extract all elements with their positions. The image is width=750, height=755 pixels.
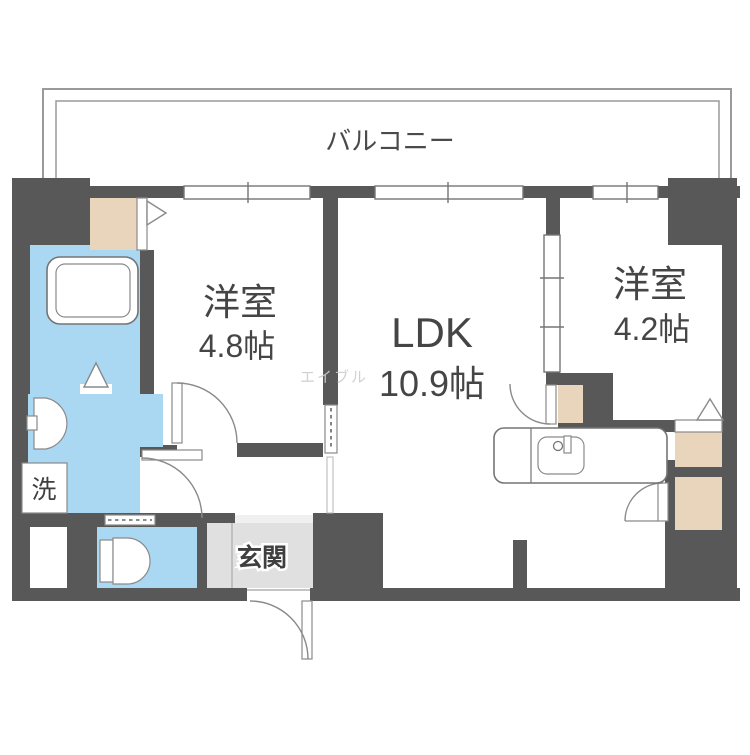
wall-right [722,245,737,601]
east-closet-swing-triangle [697,399,723,420]
bathtub-inner-icon [56,264,130,317]
west-room-closet-door [137,198,147,250]
west-room-size: 4.8帖 [199,328,276,364]
wall-toilet-left [67,527,97,590]
window-east-room [593,186,658,199]
wall-east-partition-top [546,198,560,235]
east-room-closet [675,432,722,467]
wall-corner-top-right [668,178,737,245]
wall-bottom-left [12,588,247,601]
west-room-door-arc [177,383,237,443]
wall-top-3 [523,186,593,198]
entrance-door-arc [250,601,308,659]
east-room-name: 洋室 [613,264,687,305]
balcony: バルコニー [43,89,731,190]
floorplan-drawing: バルコニー [0,0,750,750]
wall-storage-bottom-block [675,530,722,601]
kitchen-faucet-bar-icon [564,436,571,453]
wall-storage-divider [675,467,722,477]
window-west-room [184,186,310,199]
kitchen-faucet-icon [554,442,563,451]
wall-entrance-right-block [313,513,383,590]
storage-closet [675,477,722,530]
wall-ldk-stub [513,540,527,588]
floorplan-page: バルコニー [0,0,750,750]
laundry-label: 洗 [31,476,56,504]
entrance-label: 玄関 [237,543,287,572]
wall-bath-side [140,250,154,407]
wall-left [12,198,30,601]
wall-washroom-bottom [12,513,97,527]
wall-storage-left-strip [665,460,675,601]
entrance-area: 玄関 [207,515,313,588]
room-labels: 洋室 4.8帖 LDK 10.9帖 洋室 4.2帖 エイブル [199,264,691,404]
wall-west-room-bottom-b [237,443,323,457]
storage-door-leaf [658,483,668,521]
washroom-door-arc [142,458,202,518]
west-room-closet [90,198,137,250]
east-room-size: 4.2帖 [614,311,691,347]
sliding-door-east-room [544,235,560,372]
west-room-name: 洋室 [203,282,277,323]
ldk-size: 10.9帖 [379,363,485,404]
corridor-opening [327,457,333,513]
east-room-door-leaf [546,385,556,424]
east-room-door-arc [510,384,550,424]
balcony-label: バルコニー [325,126,454,156]
window-ldk [375,186,523,199]
washbasin-tap-icon [27,416,37,430]
west-room-door-leaf [172,383,182,443]
west-closet-swing-triangle [147,201,166,225]
wall-kitchen-top [548,373,613,385]
wall-top-2 [310,186,375,198]
toilet-tank-icon [100,540,113,582]
kitchen-side-closet [558,385,583,423]
ldk-name: LDK [391,309,473,356]
watermark-text: エイブル [300,368,368,386]
storage-door-arc [625,483,663,521]
east-room-closet-door [675,420,722,432]
